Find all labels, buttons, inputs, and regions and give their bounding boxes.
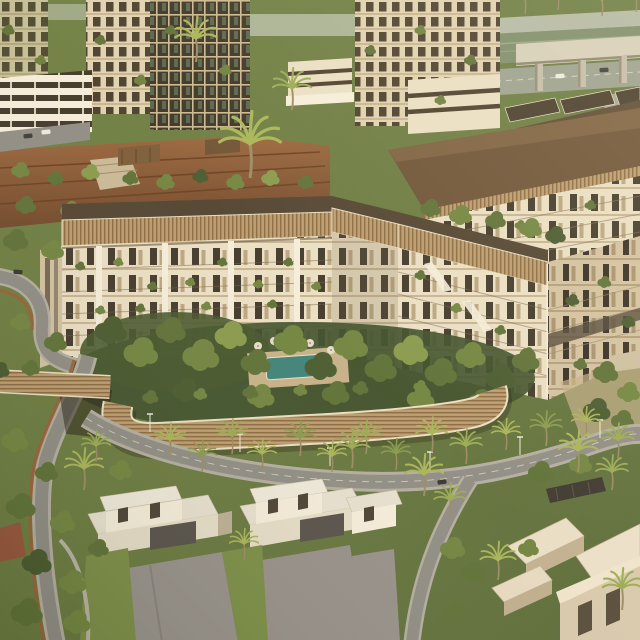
sunlight-overlay xyxy=(0,0,640,640)
aerial-render xyxy=(0,0,640,640)
aerial-render-image xyxy=(0,0,640,640)
